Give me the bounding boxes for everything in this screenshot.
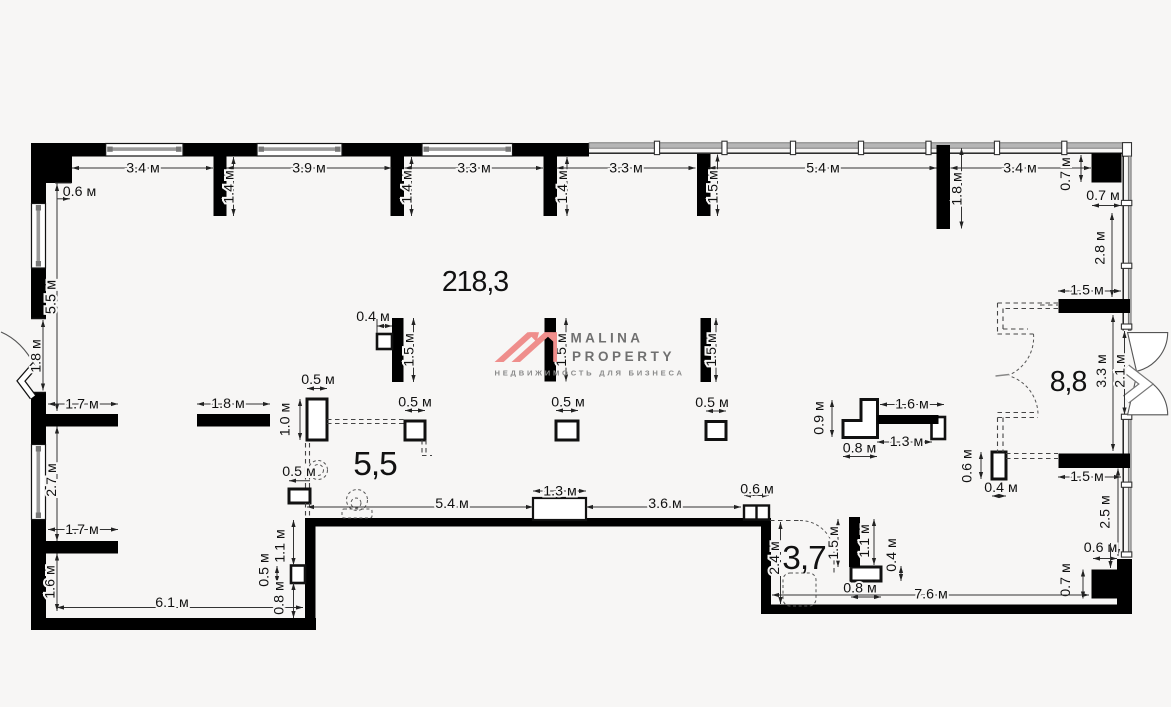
svg-text:1.6 м: 1.6 м — [43, 565, 59, 598]
svg-text:НЕДВИЖИМОСТЬ ДЛЯ БИЗНЕСА: НЕДВИЖИМОСТЬ ДЛЯ БИЗНЕСА — [495, 369, 685, 378]
svg-text:3.9 м: 3.9 м — [292, 161, 325, 177]
svg-text:1.5 м: 1.5 м — [1070, 283, 1103, 299]
svg-text:2.8 м: 2.8 м — [1093, 231, 1109, 264]
svg-text:1.4 м: 1.4 м — [222, 170, 238, 203]
svg-text:0.5 м: 0.5 м — [551, 395, 584, 411]
svg-text:1.4 м: 1.4 м — [400, 170, 416, 203]
svg-text:0.7 м: 0.7 м — [1058, 563, 1074, 596]
svg-text:0.4 м: 0.4 м — [984, 480, 1017, 496]
svg-text:0.7 м: 0.7 м — [1086, 188, 1119, 204]
svg-text:1.5 м: 1.5 м — [402, 333, 418, 366]
svg-text:0.6 м: 0.6 м — [63, 184, 96, 200]
svg-text:MALINA: MALINA — [571, 331, 644, 346]
svg-text:1.8 м: 1.8 м — [950, 172, 966, 205]
svg-text:0.5 м: 0.5 м — [695, 395, 728, 411]
svg-text:1.3 м: 1.3 м — [890, 434, 923, 450]
svg-text:5.4 м: 5.4 м — [435, 496, 468, 512]
svg-text:2.1 м: 2.1 м — [1113, 354, 1129, 387]
svg-text:1.1 м: 1.1 м — [857, 524, 873, 557]
svg-text:1.5 м: 1.5 м — [706, 170, 722, 203]
svg-text:218,3: 218,3 — [442, 266, 508, 298]
svg-text:PROPERTY: PROPERTY — [572, 349, 675, 364]
svg-text:0.9 м: 0.9 м — [812, 401, 828, 434]
svg-text:0.6 м: 0.6 м — [960, 449, 976, 482]
svg-text:2.4 м: 2.4 м — [767, 541, 783, 574]
svg-text:1.8 м: 1.8 м — [29, 339, 45, 372]
svg-text:1.8 м: 1.8 м — [211, 396, 244, 412]
svg-text:2.7 м: 2.7 м — [44, 463, 60, 496]
svg-text:1.0 м: 1.0 м — [278, 403, 294, 436]
svg-text:1.5 м: 1.5 м — [826, 526, 842, 559]
svg-text:1.6 м: 1.6 м — [895, 397, 928, 413]
svg-text:0.4 м: 0.4 м — [356, 309, 389, 325]
svg-text:3.3 м: 3.3 м — [457, 161, 490, 177]
svg-text:3,7: 3,7 — [782, 540, 826, 577]
svg-text:0.8 м: 0.8 м — [843, 581, 876, 597]
svg-text:5.5 м: 5.5 м — [44, 280, 60, 314]
svg-text:1.1 м: 1.1 м — [273, 529, 289, 562]
svg-text:0.5 м: 0.5 м — [282, 464, 315, 480]
svg-text:3.6 м: 3.6 м — [648, 496, 681, 512]
svg-text:0.5 м: 0.5 м — [257, 553, 273, 586]
svg-text:1.7 м: 1.7 м — [65, 522, 98, 538]
svg-text:0.7 м: 0.7 м — [1058, 157, 1074, 190]
svg-text:0.6 м: 0.6 м — [740, 482, 773, 498]
svg-text:5,5: 5,5 — [353, 446, 397, 483]
svg-text:0.8 м: 0.8 м — [843, 441, 876, 457]
svg-text:2.5 м: 2.5 м — [1098, 495, 1114, 528]
svg-text:1.4 м: 1.4 м — [555, 170, 571, 203]
svg-text:1.3 м: 1.3 м — [543, 484, 576, 500]
svg-text:1.7 м: 1.7 м — [65, 397, 98, 413]
svg-text:6.1 м: 6.1 м — [155, 595, 188, 611]
svg-text:0.8 м: 0.8 м — [272, 581, 288, 614]
svg-text:1.5 м: 1.5 м — [704, 333, 720, 366]
svg-text:3.3 м: 3.3 м — [609, 161, 642, 177]
svg-text:0.6 м: 0.6 м — [1084, 540, 1117, 556]
svg-text:0.4 м: 0.4 м — [884, 538, 900, 571]
svg-text:0.5 м: 0.5 м — [398, 395, 431, 411]
svg-text:3.4 м: 3.4 м — [126, 161, 159, 177]
svg-text:7.6 м: 7.6 м — [914, 587, 947, 603]
svg-text:0.5 м: 0.5 м — [301, 372, 334, 388]
svg-text:5.4 м: 5.4 м — [806, 161, 839, 177]
svg-text:1.5 м: 1.5 м — [1070, 469, 1103, 485]
svg-text:8,8: 8,8 — [1050, 366, 1087, 398]
svg-text:3.3 м: 3.3 м — [1094, 354, 1110, 387]
svg-text:3.4 м: 3.4 м — [1003, 161, 1036, 177]
